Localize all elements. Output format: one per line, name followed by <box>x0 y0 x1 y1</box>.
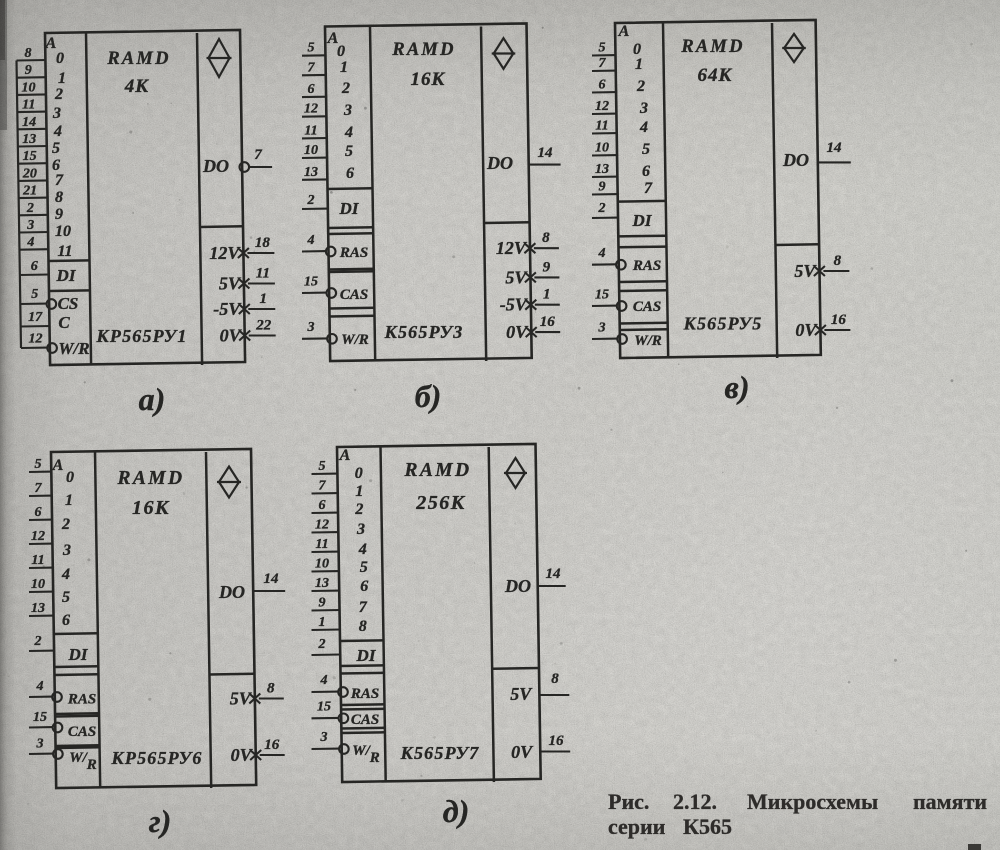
svg-text:0V: 0V <box>220 326 243 346</box>
svg-text:A: A <box>45 35 57 52</box>
svg-text:5V: 5V <box>794 261 817 281</box>
svg-text:3: 3 <box>356 521 365 538</box>
svg-text:3: 3 <box>36 737 44 752</box>
svg-text:4: 4 <box>358 541 367 558</box>
svg-text:1: 1 <box>319 615 326 630</box>
svg-text:7: 7 <box>359 599 368 616</box>
svg-text:5V: 5V <box>505 267 528 287</box>
svg-text:RAS: RAS <box>339 245 368 261</box>
svg-text:2: 2 <box>598 201 606 216</box>
svg-text:1: 1 <box>635 56 643 73</box>
svg-text:7: 7 <box>599 56 607 71</box>
svg-text:4: 4 <box>26 235 34 250</box>
svg-text:5V: 5V <box>510 684 533 704</box>
svg-text:4: 4 <box>639 119 648 136</box>
svg-text:A: A <box>52 457 64 474</box>
svg-text:5: 5 <box>319 459 326 474</box>
svg-text:3: 3 <box>320 730 328 745</box>
svg-text:б): б) <box>415 378 442 414</box>
svg-text:8: 8 <box>25 46 32 61</box>
svg-text:3: 3 <box>307 320 315 335</box>
svg-text:18: 18 <box>255 235 271 251</box>
svg-text:DO: DO <box>486 153 513 173</box>
svg-text:1: 1 <box>58 70 66 87</box>
svg-text:9: 9 <box>543 259 551 275</box>
svg-text:10: 10 <box>22 80 36 95</box>
svg-text:11: 11 <box>595 119 608 134</box>
svg-text:а): а) <box>139 381 166 417</box>
svg-text:DO: DO <box>218 582 245 602</box>
svg-text:15: 15 <box>304 275 318 290</box>
svg-text:14: 14 <box>22 115 36 130</box>
svg-text:20: 20 <box>22 166 37 181</box>
svg-text:1: 1 <box>340 59 348 76</box>
svg-text:DI: DI <box>339 199 360 218</box>
svg-text:256К: 256К <box>415 492 466 514</box>
svg-text:5V: 5V <box>230 689 253 709</box>
svg-text:RAMD: RAMD <box>106 49 170 69</box>
svg-text:12: 12 <box>595 99 609 114</box>
svg-text:16: 16 <box>264 737 280 753</box>
svg-text:22: 22 <box>255 318 272 334</box>
svg-text:5: 5 <box>345 143 353 160</box>
svg-text:-5V: -5V <box>213 299 242 319</box>
svg-text:12: 12 <box>31 529 45 544</box>
svg-text:3: 3 <box>26 218 34 233</box>
svg-text:7: 7 <box>308 60 316 75</box>
svg-text:W/R: W/R <box>634 333 662 349</box>
svg-text:4К: 4К <box>124 76 150 97</box>
svg-text:3: 3 <box>52 105 61 122</box>
svg-text:CAS: CAS <box>68 724 96 740</box>
svg-text:11: 11 <box>256 266 270 282</box>
svg-text:6: 6 <box>35 505 42 520</box>
svg-text:64К: 64К <box>698 65 733 86</box>
svg-text:2: 2 <box>318 637 326 652</box>
svg-text:4: 4 <box>36 679 44 694</box>
svg-text:6: 6 <box>31 259 38 274</box>
svg-text:3: 3 <box>598 321 606 336</box>
svg-text:КР565РУ1: КР565РУ1 <box>95 326 187 346</box>
svg-text:7: 7 <box>55 172 64 189</box>
svg-text:5: 5 <box>360 559 368 576</box>
svg-text:5: 5 <box>642 141 650 158</box>
svg-text:КР565РУ6: КР565РУ6 <box>110 748 202 768</box>
svg-text:16К: 16К <box>132 497 170 519</box>
svg-text:2: 2 <box>636 78 645 95</box>
svg-text:CAS: CAS <box>340 287 368 303</box>
svg-text:15: 15 <box>33 710 47 725</box>
svg-text:RAS: RAS <box>350 686 379 702</box>
svg-text:RAMD: RAMD <box>116 468 184 489</box>
svg-text:1: 1 <box>543 287 551 303</box>
svg-text:2: 2 <box>26 201 34 216</box>
svg-text:8: 8 <box>267 681 275 697</box>
svg-text:9: 9 <box>319 596 326 611</box>
svg-text:16: 16 <box>540 314 556 330</box>
svg-text:11: 11 <box>22 98 35 113</box>
svg-text:5: 5 <box>308 41 315 56</box>
svg-text:0: 0 <box>56 50 64 67</box>
svg-text:3: 3 <box>62 542 71 559</box>
svg-text:RAMD: RAMD <box>403 460 471 481</box>
svg-text:К565РУ5: К565РУ5 <box>683 314 763 334</box>
svg-text:5V: 5V <box>219 274 242 294</box>
svg-text:8: 8 <box>55 189 63 206</box>
svg-text:8: 8 <box>834 253 842 269</box>
svg-text:12V: 12V <box>496 238 528 258</box>
svg-text:10: 10 <box>315 557 329 572</box>
svg-text:0V: 0V <box>231 745 254 765</box>
svg-text:11: 11 <box>57 243 72 260</box>
svg-text:К565РУ7: К565РУ7 <box>400 743 480 763</box>
svg-text:9: 9 <box>55 206 63 223</box>
svg-text:W/R: W/R <box>58 339 89 358</box>
svg-text:W/R: W/R <box>341 332 369 348</box>
svg-text:0V: 0V <box>511 742 534 762</box>
svg-text:RAMD: RAMD <box>391 40 455 60</box>
svg-text:7: 7 <box>319 479 327 494</box>
svg-text:8: 8 <box>359 618 367 635</box>
svg-text:8: 8 <box>542 230 550 246</box>
svg-text:16: 16 <box>549 733 565 749</box>
svg-text:1: 1 <box>65 492 73 509</box>
svg-text:CAS: CAS <box>633 299 661 315</box>
svg-text:15: 15 <box>317 700 331 715</box>
svg-text:14: 14 <box>827 140 843 156</box>
svg-text:10: 10 <box>304 143 318 158</box>
svg-text:1: 1 <box>260 291 268 307</box>
svg-text:17: 17 <box>28 310 43 325</box>
svg-text:6: 6 <box>62 612 70 629</box>
svg-text:-5V: -5V <box>500 295 529 315</box>
svg-text:5: 5 <box>31 287 38 302</box>
svg-text:10: 10 <box>55 223 71 240</box>
svg-text:10: 10 <box>31 577 45 592</box>
svg-text:6: 6 <box>319 498 326 513</box>
svg-text:6: 6 <box>360 578 368 595</box>
svg-text:RAMD: RAMD <box>680 37 744 57</box>
svg-text:4: 4 <box>307 233 315 248</box>
svg-text:DI: DI <box>56 266 77 285</box>
svg-text:16: 16 <box>831 312 847 328</box>
svg-text:2: 2 <box>61 516 70 533</box>
svg-text:3: 3 <box>639 100 648 117</box>
svg-text:5: 5 <box>599 41 606 56</box>
svg-text:16К: 16К <box>411 69 446 90</box>
svg-text:14: 14 <box>546 566 562 582</box>
svg-text:DO: DO <box>504 576 531 596</box>
svg-text:4: 4 <box>344 124 353 141</box>
svg-text:13: 13 <box>304 165 318 180</box>
svg-text:7: 7 <box>644 180 653 197</box>
svg-text:0V: 0V <box>506 322 529 342</box>
svg-text:0V: 0V <box>795 320 818 340</box>
svg-text:2: 2 <box>34 634 42 649</box>
svg-text:0: 0 <box>66 469 74 486</box>
svg-text:г): г) <box>149 803 171 839</box>
svg-text:2: 2 <box>354 501 363 518</box>
svg-text:4: 4 <box>320 673 328 688</box>
svg-text:8: 8 <box>551 671 559 687</box>
svg-text:9: 9 <box>25 63 32 78</box>
svg-text:9: 9 <box>599 180 606 195</box>
svg-text:4: 4 <box>53 123 62 140</box>
svg-text:11: 11 <box>315 537 328 552</box>
svg-text:RAS: RAS <box>67 692 96 708</box>
svg-text:4: 4 <box>598 246 606 261</box>
svg-text:15: 15 <box>23 149 37 164</box>
svg-text:в): в) <box>725 369 750 405</box>
svg-text:13: 13 <box>315 576 329 591</box>
svg-text:4: 4 <box>61 566 70 583</box>
svg-text:12: 12 <box>304 102 318 117</box>
svg-text:6: 6 <box>346 165 354 182</box>
svg-text:6: 6 <box>308 82 315 97</box>
svg-text:12: 12 <box>29 332 43 347</box>
svg-text:6: 6 <box>599 78 606 93</box>
svg-text:0: 0 <box>337 43 345 60</box>
svg-text:2: 2 <box>54 86 63 103</box>
svg-text:12V: 12V <box>209 243 241 263</box>
svg-text:5: 5 <box>52 140 60 157</box>
svg-text:13: 13 <box>595 162 609 177</box>
svg-text:д): д) <box>443 793 470 829</box>
svg-text:7: 7 <box>254 147 262 163</box>
svg-text:К565РУ3: К565РУ3 <box>384 322 464 342</box>
svg-text:DI: DI <box>356 646 377 665</box>
svg-text:14: 14 <box>538 145 554 161</box>
svg-text:1: 1 <box>355 483 363 500</box>
svg-text:CAS: CAS <box>351 712 379 728</box>
svg-text:15: 15 <box>595 288 609 303</box>
svg-text:2: 2 <box>341 80 350 97</box>
svg-text:DO: DO <box>782 150 809 170</box>
svg-text:RAS: RAS <box>632 258 661 274</box>
svg-text:11: 11 <box>31 553 44 568</box>
svg-text:10: 10 <box>595 141 609 156</box>
svg-text:6: 6 <box>642 163 650 180</box>
svg-text:7: 7 <box>35 481 43 496</box>
svg-text:DI: DI <box>632 211 653 230</box>
svg-text:13: 13 <box>31 601 45 616</box>
svg-text:21: 21 <box>22 184 37 199</box>
svg-text:5: 5 <box>62 589 70 606</box>
svg-text:C: C <box>58 313 70 332</box>
svg-text:0: 0 <box>355 465 363 482</box>
svg-text:12: 12 <box>315 518 329 533</box>
svg-text:DO: DO <box>202 156 229 176</box>
svg-text:DI: DI <box>68 645 89 664</box>
svg-text:A: A <box>618 23 630 40</box>
svg-text:13: 13 <box>22 132 36 147</box>
svg-text:2: 2 <box>307 193 315 208</box>
svg-text:CS: CS <box>58 294 79 313</box>
svg-text:3: 3 <box>343 102 352 119</box>
svg-text:14: 14 <box>264 571 280 587</box>
svg-text:11: 11 <box>304 123 317 138</box>
svg-text:5: 5 <box>35 457 42 472</box>
svg-text:A: A <box>339 447 351 464</box>
